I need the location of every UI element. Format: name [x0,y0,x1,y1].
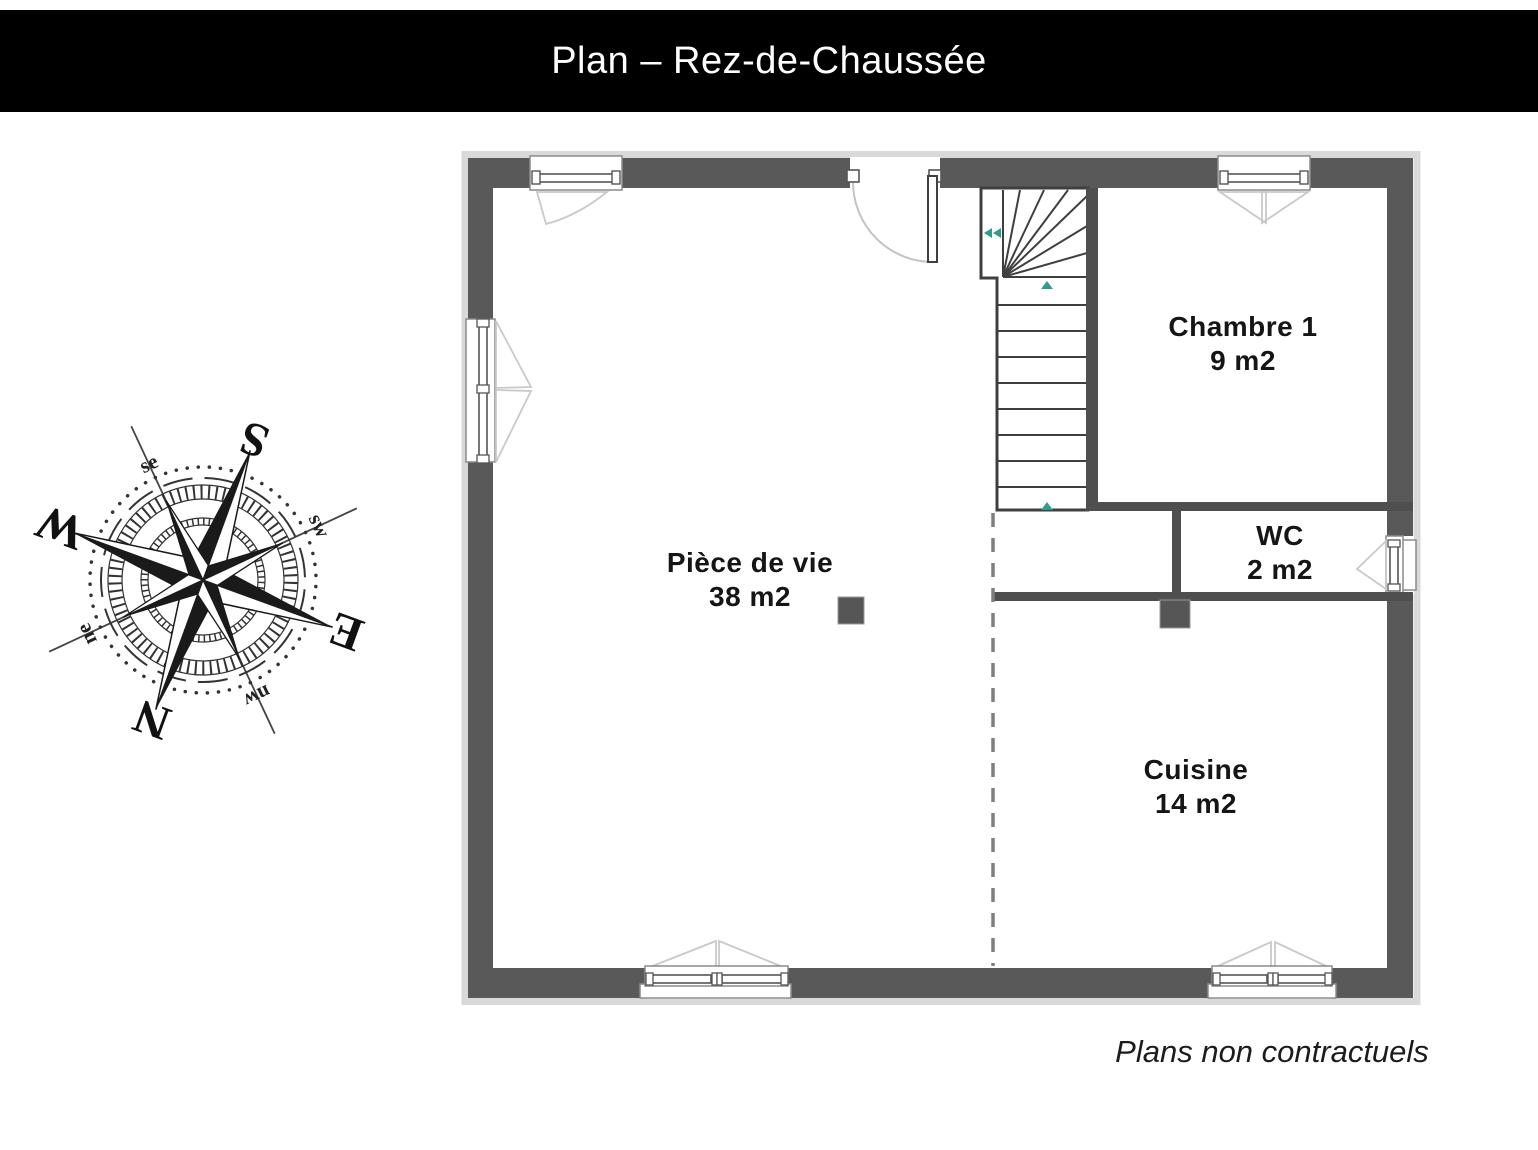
compass-sw-label: sw [304,510,336,542]
room-label-wc: WC 2 m2 [1247,519,1313,587]
room-name: WC [1247,519,1313,553]
compass-west-label: W [29,494,92,560]
compass-south-label: S [233,410,276,469]
compass-ne-label: ne [71,620,102,649]
room-label-cuisine: Cuisine 14 m2 [1144,753,1249,821]
room-name: Chambre 1 [1168,310,1317,344]
room-label-piece-de-vie: Pièce de vie 38 m2 [667,546,833,614]
compass-star [26,403,380,757]
duct-square-living [838,597,864,624]
room-name: Pièce de vie [667,546,833,580]
compass-se-label: se [136,449,162,478]
compass-east-label: E [322,601,370,662]
room-area: 14 m2 [1144,787,1249,821]
room-name: Cuisine [1144,753,1249,787]
compass-north-label: N [127,689,178,751]
staircase [981,188,1088,510]
duct-square-cuisine [1160,600,1190,628]
compass-rose: N S E W ne se sw nw [0,354,421,801]
room-area: 38 m2 [667,580,833,614]
room-label-chambre-1: Chambre 1 9 m2 [1168,310,1317,378]
door-leaf-icon [928,176,937,262]
compass-nw-label: nw [239,680,274,713]
room-area: 2 m2 [1247,553,1313,587]
disclaimer-text: Plans non contractuels [1052,1034,1492,1070]
room-area: 9 m2 [1168,344,1317,378]
